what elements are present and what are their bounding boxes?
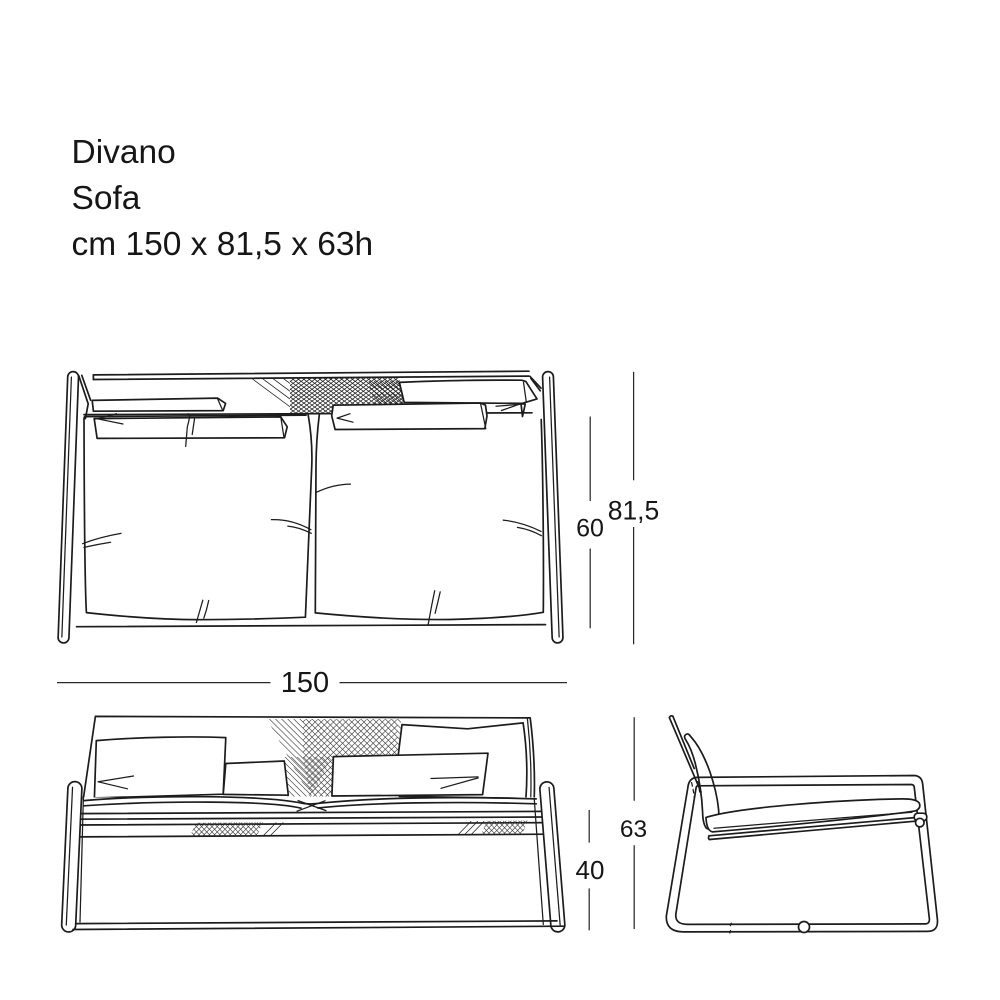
svg-text:40: 40 <box>576 855 605 885</box>
svg-text:cm 150 x 81,5 x 63h: cm 150 x 81,5 x 63h <box>72 226 374 263</box>
svg-text:Divano: Divano <box>72 134 176 171</box>
svg-text:63: 63 <box>620 816 647 843</box>
svg-text:150: 150 <box>281 667 329 699</box>
svg-text:60: 60 <box>576 515 604 543</box>
svg-text:81,5: 81,5 <box>608 496 660 526</box>
svg-text:Sofa: Sofa <box>72 180 141 217</box>
